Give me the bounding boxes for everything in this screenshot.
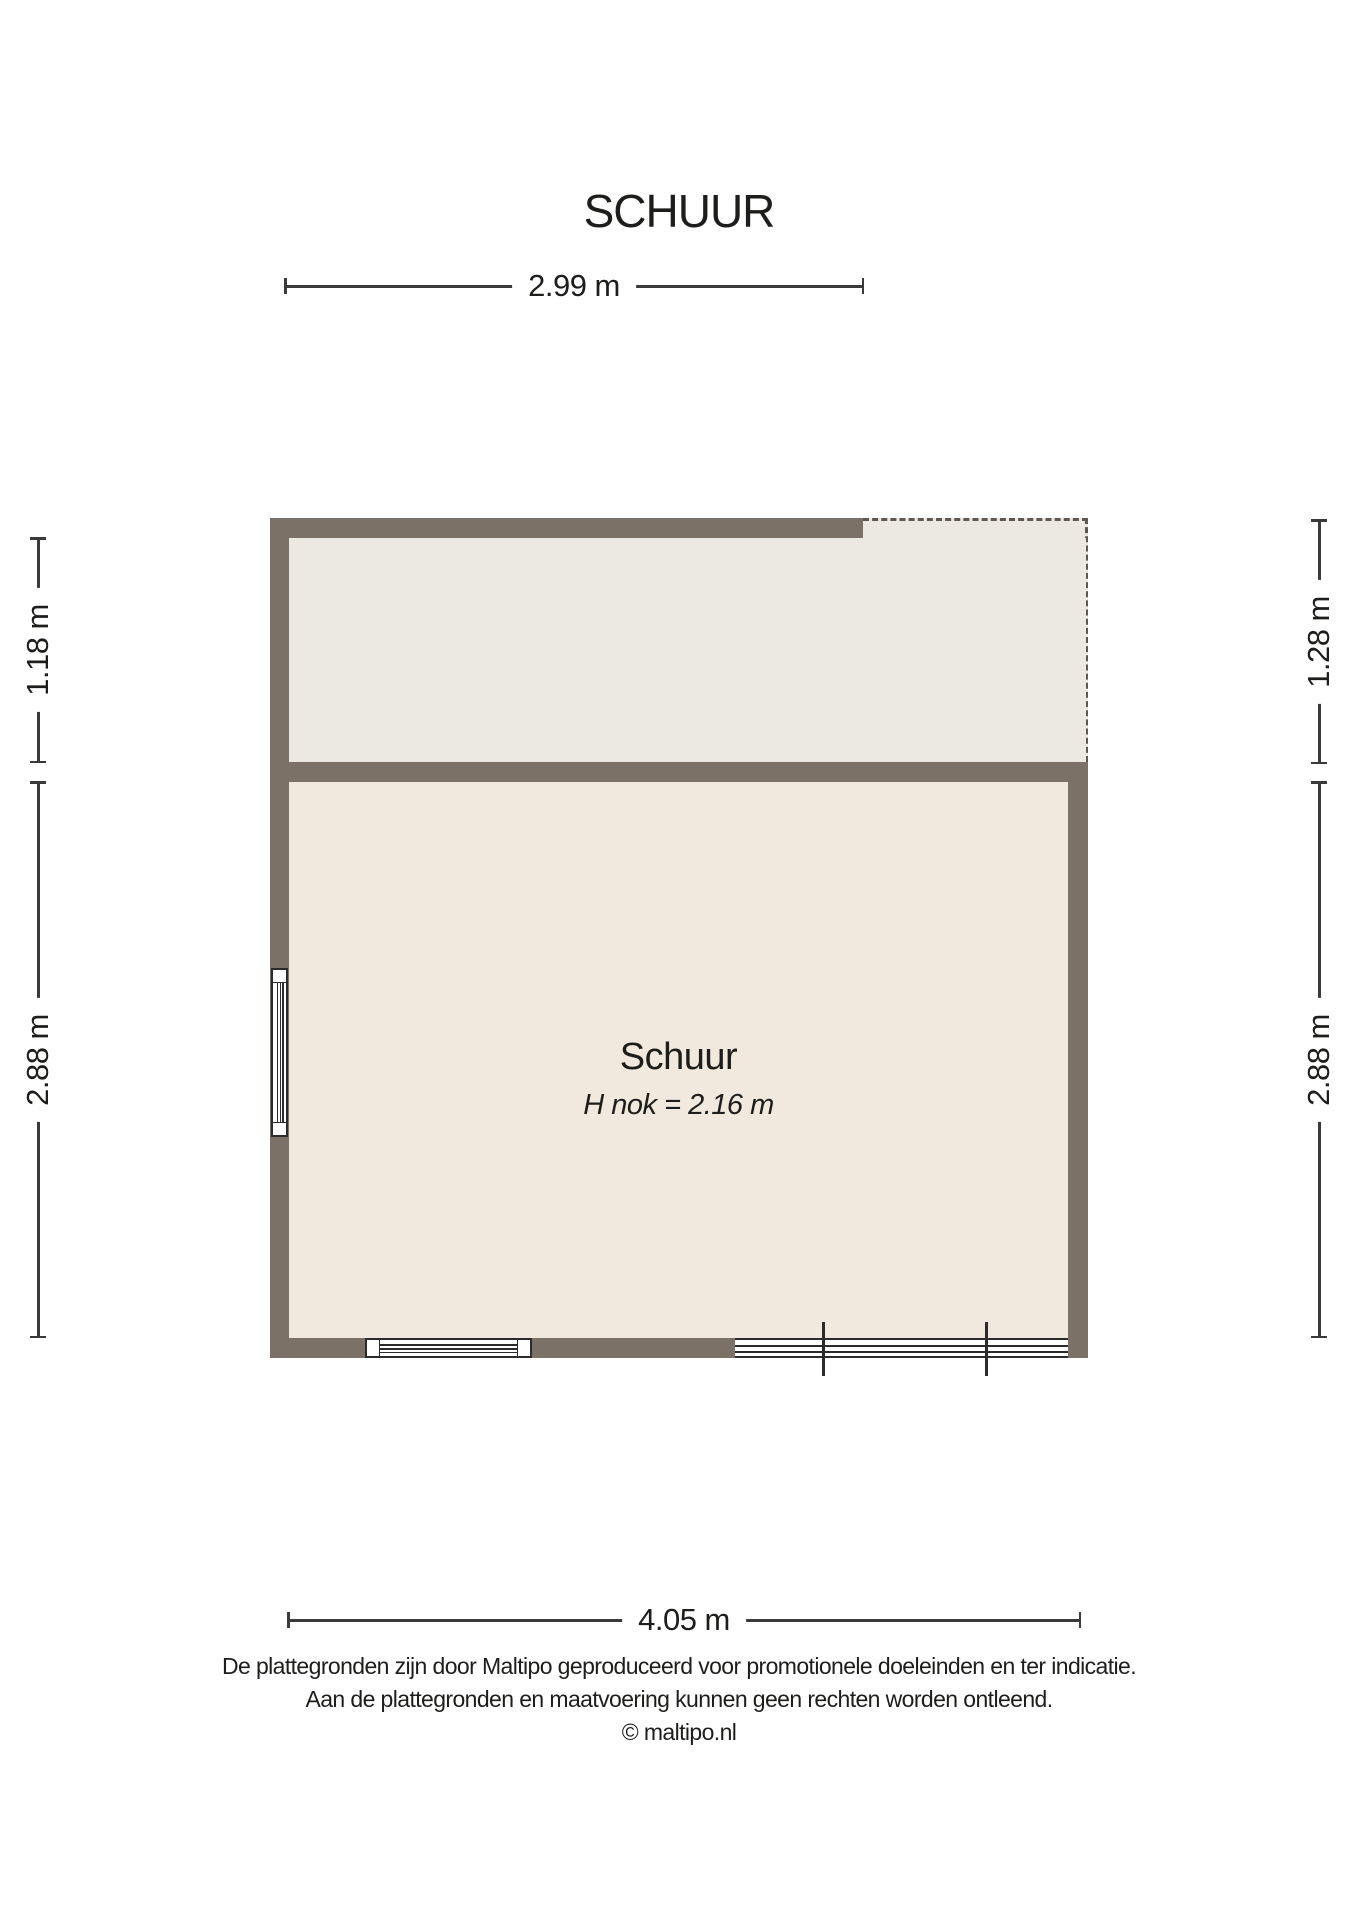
left-window xyxy=(271,968,288,1137)
dimension-right-lower: 2.88 m xyxy=(1318,782,1321,1337)
window-pane-icon xyxy=(367,1340,380,1356)
dimension-left-upper-label: 1.18 m xyxy=(20,588,56,712)
door-panel-divider-icon xyxy=(985,1322,988,1376)
disclaimer-line-1: De plattegronden zijn door Maltipo gepro… xyxy=(0,1650,1358,1683)
dimension-left-lower: 2.88 m xyxy=(37,782,40,1337)
window-glazing-icon xyxy=(380,1340,517,1356)
upper-room-floor xyxy=(289,538,1086,762)
dimension-bottom-label: 4.05 m xyxy=(622,1602,746,1638)
dimension-left-lower-label: 2.88 m xyxy=(20,998,56,1122)
wall-interior xyxy=(270,762,1088,782)
window-pane-icon xyxy=(273,1122,286,1135)
door-panel-divider-icon xyxy=(822,1322,825,1376)
footer-disclaimer: De plattegronden zijn door Maltipo gepro… xyxy=(0,1650,1358,1749)
dimension-top: 2.99 m xyxy=(285,285,863,288)
disclaimer-line-2: Aan de plattegronden en maatvoering kunn… xyxy=(0,1683,1358,1716)
room-name: Schuur xyxy=(289,1036,1068,1079)
bottom-window xyxy=(365,1338,532,1358)
sliding-door xyxy=(735,1338,1068,1358)
wall-right xyxy=(1068,762,1088,1358)
copyright-line: © maltipo.nl xyxy=(0,1716,1358,1749)
dimension-left-upper: 1.18 m xyxy=(37,538,40,762)
wall-left xyxy=(270,518,289,1358)
wall-top xyxy=(270,518,863,538)
dimension-bottom: 4.05 m xyxy=(288,1619,1080,1622)
page-title: SCHUUR xyxy=(0,184,1358,238)
door-track-icon xyxy=(735,1345,1068,1347)
dimension-right-upper-label: 1.28 m xyxy=(1301,580,1337,704)
window-pane-icon xyxy=(273,970,286,983)
dimension-right-lower-label: 2.88 m xyxy=(1301,998,1337,1122)
room-label: Schuur H nok = 2.16 m xyxy=(289,1036,1068,1122)
window-pane-icon xyxy=(517,1340,530,1356)
window-glazing-icon xyxy=(273,983,286,1122)
door-track-icon xyxy=(735,1351,1068,1353)
room-ridge-height: H nok = 2.16 m xyxy=(289,1089,1068,1122)
dimension-right-upper: 1.28 m xyxy=(1318,520,1321,763)
dimension-top-label: 2.99 m xyxy=(512,268,636,304)
floorplan-page: SCHUUR 2.99 m Schuur H nok = 2.16 m xyxy=(0,0,1358,1920)
